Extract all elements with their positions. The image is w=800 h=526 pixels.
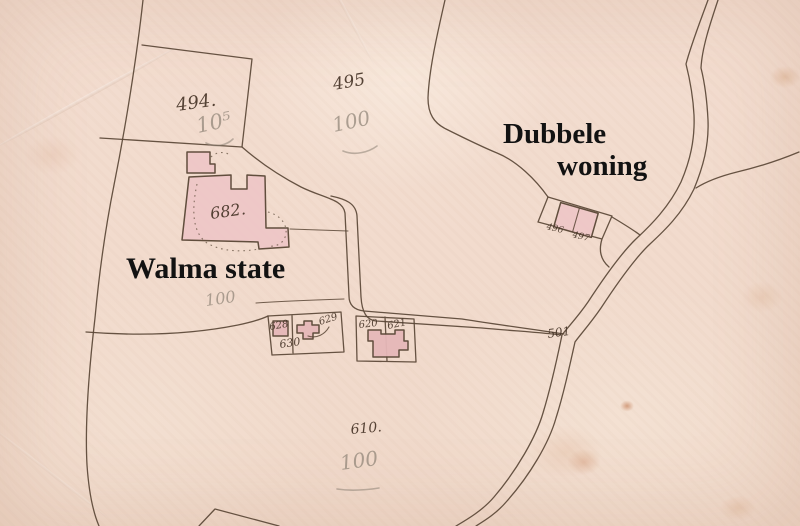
main-road-east-line xyxy=(476,0,718,526)
pencil-dash-495 xyxy=(343,146,377,153)
southwest-field-boundary xyxy=(86,316,268,334)
main-road-west-line xyxy=(456,0,708,526)
field-path-line xyxy=(256,299,344,303)
building-620-621 xyxy=(368,330,408,357)
historical-cadastral-map: 494. 495 682. 610. 501 628 629 630 620 6… xyxy=(0,0,800,526)
northeast-boundary-line xyxy=(696,152,799,188)
parcel-number-501: 501 xyxy=(546,324,571,341)
parcel-number-610: 610. xyxy=(350,419,382,438)
pencil-dash-494 xyxy=(206,139,233,146)
outbuilding-small-square xyxy=(187,152,215,173)
label-dubbele-line2: woning xyxy=(557,150,647,182)
label-dubbele-line1: Dubbele xyxy=(503,118,647,150)
parcel-number-620: 620 xyxy=(358,318,379,331)
farm-lane-east-and-road-lower xyxy=(331,196,561,335)
parcel-number-630: 630 xyxy=(279,335,302,351)
pencil-note-610: 100 xyxy=(338,446,379,475)
parcel-number-629: 629 xyxy=(318,311,340,328)
bottom-parcel-corner xyxy=(199,509,279,526)
parcel-number-495: 495 xyxy=(330,70,366,96)
map-drawing: 494. 495 682. 610. 501 628 629 630 620 6… xyxy=(0,0,800,526)
label-dubbele-woning: Dubbele woning xyxy=(503,118,647,182)
label-walma-state: Walma state xyxy=(126,252,285,286)
pencil-note-495: 100 xyxy=(330,105,373,136)
pencil-note-walma: 100 xyxy=(204,287,237,310)
building-yard-line xyxy=(290,229,348,231)
pencil-underline-610 xyxy=(337,488,379,490)
small-dotted-arc xyxy=(211,153,230,157)
